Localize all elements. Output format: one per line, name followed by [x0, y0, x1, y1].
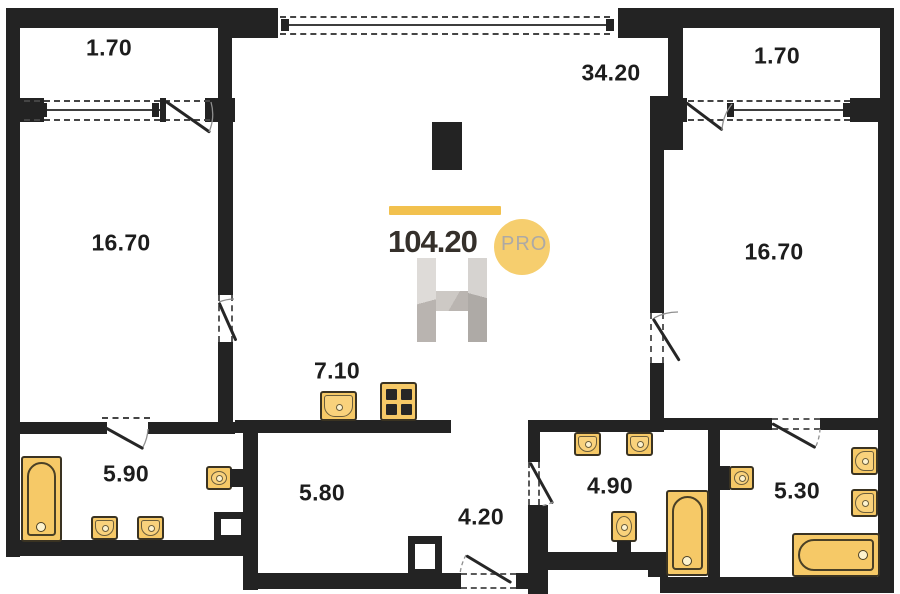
wall	[155, 422, 235, 434]
room-label-kitchen: 7.10	[314, 358, 360, 385]
sink	[574, 432, 601, 456]
bathtub	[21, 456, 62, 542]
sink	[851, 447, 878, 475]
window-frame-tick	[606, 19, 614, 31]
wall	[218, 342, 233, 422]
floor-plan: 1.70 34.20 1.70 16.70 16.70 7.10 5.90 5.…	[0, 0, 900, 594]
bathtub	[666, 490, 709, 576]
bath-left-door-opening	[102, 417, 150, 419]
room-label-bath-right: 5.30	[774, 478, 820, 505]
wall	[528, 420, 664, 432]
wall	[243, 420, 258, 590]
window-glass-line	[282, 24, 608, 26]
room-label-balcony-right: 1.70	[754, 43, 800, 70]
wall	[660, 577, 892, 593]
toilet	[611, 511, 637, 542]
sink	[137, 516, 164, 540]
h-logo-right-bar	[468, 258, 487, 342]
window-frame-tick	[843, 103, 850, 117]
window-dashed-line	[280, 33, 610, 35]
toilet-cistern	[617, 541, 631, 552]
wall	[20, 422, 100, 434]
sink	[851, 489, 878, 517]
stove-burner	[401, 404, 412, 415]
window-frame-tick	[281, 19, 289, 31]
wall	[850, 98, 886, 122]
window-frame-tick	[40, 103, 47, 117]
duct-shaft-inner	[415, 544, 435, 569]
bathtub-drain	[36, 522, 46, 532]
balcony-right-door-leaf	[685, 101, 724, 131]
bath-left-door-leaf	[104, 426, 144, 450]
window-dashed-line	[24, 119, 210, 121]
window-dashed-line	[24, 100, 210, 102]
bathtub	[792, 533, 880, 577]
room-label-bedroom-left: 16.70	[91, 230, 150, 257]
wall	[668, 8, 894, 28]
bathtub-drain	[682, 556, 692, 566]
window-dashed-line	[688, 100, 850, 102]
wall	[528, 420, 540, 462]
wall	[218, 98, 233, 295]
h-logo-crossbar	[436, 291, 468, 311]
toilet	[729, 466, 754, 490]
sink	[91, 516, 118, 540]
wall	[648, 552, 668, 577]
wall	[6, 540, 256, 556]
brand-suffix: PRO	[501, 233, 547, 256]
sink	[626, 432, 653, 456]
window-glass-line	[731, 109, 845, 111]
duct-shaft-inner	[221, 519, 241, 535]
room-label-balcony-left: 1.70	[86, 35, 132, 62]
wall	[708, 430, 720, 577]
toilet	[206, 466, 232, 490]
wall	[6, 8, 232, 28]
wall	[528, 505, 548, 594]
bathtub-drain	[858, 550, 868, 560]
stove	[380, 382, 417, 421]
room-label-bath-mid: 4.90	[587, 473, 633, 500]
door-hinge-tick	[148, 422, 155, 434]
toilet-cistern	[230, 469, 244, 487]
wall	[6, 8, 20, 557]
column	[432, 122, 462, 170]
window-frame-tick	[152, 103, 159, 117]
window-glass-line	[42, 109, 160, 111]
brand-accent-bar	[389, 206, 501, 215]
stove-burner	[401, 389, 412, 400]
room-label-living: 34.20	[581, 60, 640, 87]
wall	[218, 8, 232, 100]
room-label-entry: 4.20	[458, 504, 504, 531]
wall	[880, 8, 894, 100]
wall	[650, 98, 664, 313]
stove-burner	[386, 404, 397, 415]
wall	[232, 8, 278, 38]
wall	[618, 8, 668, 38]
stove-burner	[386, 389, 397, 400]
wall	[878, 98, 894, 593]
total-area-value: 104.20	[388, 224, 477, 260]
wall	[820, 418, 892, 430]
wall	[668, 8, 683, 98]
kitchen-sink	[320, 391, 357, 421]
h-logo-left-bar	[417, 258, 436, 342]
brand-h-logo-icon	[417, 258, 487, 342]
room-label-bedroom-right: 16.70	[744, 239, 803, 266]
wall	[664, 418, 772, 430]
wall	[650, 363, 664, 422]
window-frame-tick	[727, 103, 734, 117]
room-label-bath-left: 5.90	[103, 461, 149, 488]
window-dashed-line	[280, 16, 610, 18]
room-label-hall: 5.80	[299, 480, 345, 507]
wall	[235, 420, 451, 433]
